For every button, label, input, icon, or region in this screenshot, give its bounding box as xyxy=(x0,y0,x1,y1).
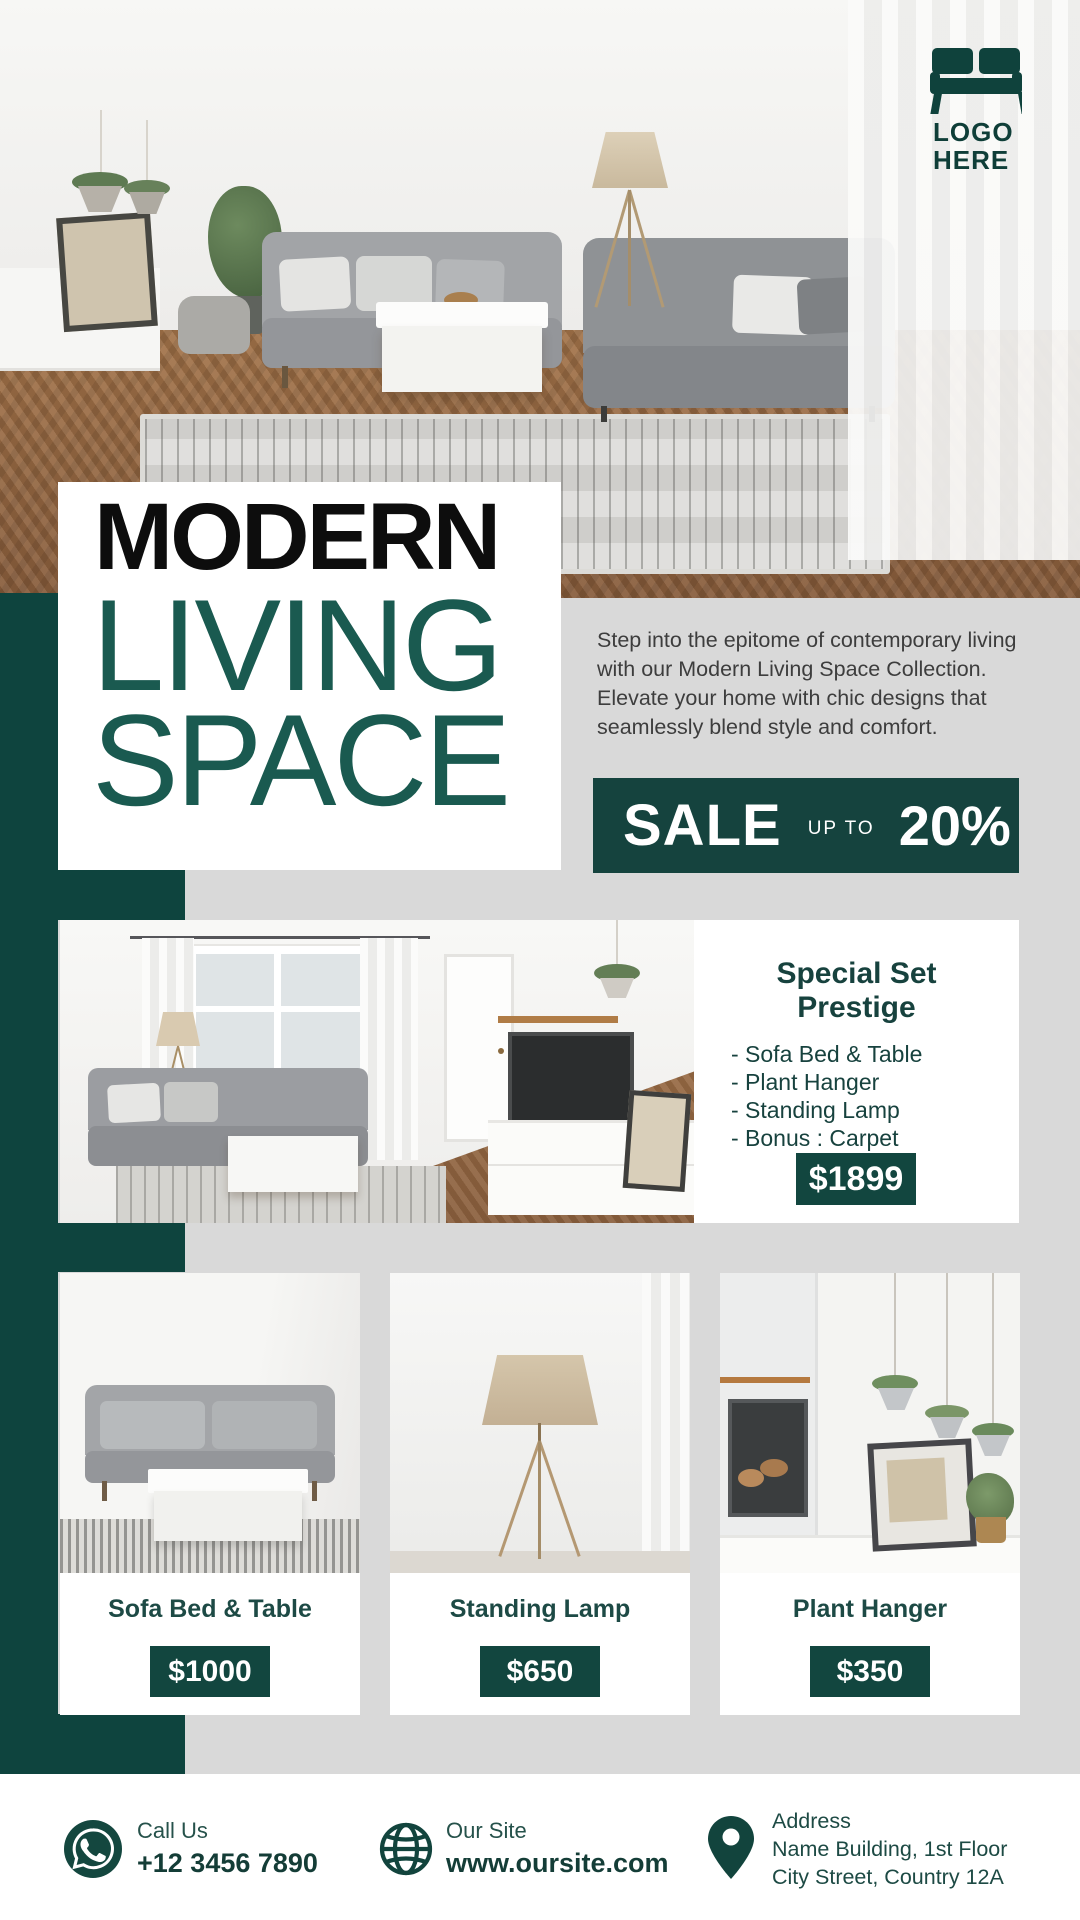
window-mullion-h xyxy=(196,1006,360,1012)
sale-word: SALE xyxy=(623,792,782,859)
special-set-item: - Plant Hanger xyxy=(731,1068,879,1096)
sale-banner: SALE UP TO 20% xyxy=(593,778,1019,873)
special-set-photo xyxy=(60,920,694,1223)
globe-icon xyxy=(377,1820,435,1878)
leaning-frame-2 xyxy=(623,1090,692,1192)
special-set-price-button[interactable]: $1899 xyxy=(796,1153,916,1205)
band-step-1 xyxy=(0,870,185,920)
title-line-1: MODERN xyxy=(94,490,498,585)
p2-lamp-leg3 xyxy=(538,1441,541,1559)
logo-line2: HERE xyxy=(933,146,1014,174)
product-photo-sofa xyxy=(60,1273,360,1573)
product-card-sofa: Sofa Bed & Table $1000 xyxy=(60,1273,360,1715)
product-photo-plant xyxy=(720,1273,1020,1573)
p1-table-body xyxy=(154,1491,302,1541)
footer: Call Us +12 3456 7890 Our Site www.oursi… xyxy=(0,1774,1080,1920)
tv xyxy=(508,1032,634,1124)
product-name: Sofa Bed & Table xyxy=(60,1595,360,1624)
p1-sofa-leg2 xyxy=(312,1481,317,1501)
product-name: Plant Hanger xyxy=(720,1595,1020,1624)
special-set-title-2: Prestige xyxy=(694,991,1019,1025)
special-set-panel: Special Set Prestige - Sofa Bed & Table … xyxy=(694,920,1019,1223)
site-value[interactable]: www.oursite.com xyxy=(446,1848,669,1879)
door xyxy=(444,954,514,1142)
product-price-button[interactable]: $650 xyxy=(480,1646,600,1697)
address-line2: City Street, Country 12A xyxy=(772,1863,1007,1891)
product-price-button[interactable]: $350 xyxy=(810,1646,930,1697)
p1-sofa-cushion xyxy=(100,1401,205,1449)
title-line-3: SPACE xyxy=(92,695,508,825)
hanging-planter2-string xyxy=(146,120,148,186)
sofa-right-leg xyxy=(601,406,607,422)
p3-hanger3-string xyxy=(992,1273,994,1433)
p3-hanger-string xyxy=(894,1273,896,1385)
sofa-left-pillow xyxy=(279,256,352,312)
logo-line1: LOGO xyxy=(933,118,1014,146)
p1-table-top xyxy=(148,1469,308,1493)
p3-fireplace-opening xyxy=(728,1399,808,1517)
p3-small-plant-pot xyxy=(976,1517,1006,1543)
p1-sofa-cushion2 xyxy=(212,1401,317,1449)
curtain-right-panel xyxy=(360,938,418,1160)
p1-sofa-leg xyxy=(102,1481,107,1501)
product-photo-lamp xyxy=(390,1273,690,1573)
p2-curtain xyxy=(642,1273,690,1573)
intro-paragraph: Step into the epitome of contemporary li… xyxy=(597,626,1021,742)
call-value[interactable]: +12 3456 7890 xyxy=(137,1848,318,1879)
special-set-card: Special Set Prestige - Sofa Bed & Table … xyxy=(60,920,1019,1223)
tv-shelf xyxy=(498,1016,618,1023)
logo xyxy=(930,48,1026,114)
sale-percent: 20% xyxy=(899,793,1011,858)
room-table xyxy=(228,1136,358,1192)
room-sofa-pillow2 xyxy=(164,1082,218,1122)
p3-log xyxy=(738,1469,764,1487)
pouf xyxy=(178,296,250,354)
site-label: Our Site xyxy=(446,1818,527,1844)
product-card-lamp: Standing Lamp $650 xyxy=(390,1273,690,1715)
leaning-frame xyxy=(56,212,158,332)
product-name: Standing Lamp xyxy=(390,1595,690,1624)
p3-hanger2-string xyxy=(946,1273,948,1415)
special-set-item: - Bonus : Carpet xyxy=(731,1124,898,1152)
call-label: Call Us xyxy=(137,1818,208,1844)
whatsapp-icon xyxy=(64,1820,122,1878)
coffee-table-top xyxy=(376,302,548,328)
room-lamp-shade xyxy=(156,1012,200,1046)
p3-mantel-trim xyxy=(720,1377,810,1383)
sofa-icon xyxy=(930,48,1022,114)
band-step-3 xyxy=(0,1714,185,1774)
flyer-page: LOGO HERE MODERN LIVING SPACE Step into … xyxy=(0,0,1080,1920)
logo-text: LOGO HERE xyxy=(933,118,1014,174)
p3-frame-inner xyxy=(886,1458,947,1523)
sale-upto: UP TO xyxy=(808,818,875,840)
door-handle xyxy=(498,1048,504,1054)
sofa-left-leg xyxy=(282,366,288,388)
p2-lamp-shade xyxy=(482,1355,598,1425)
title-box: MODERN LIVING SPACE xyxy=(58,482,561,870)
band-step-2 xyxy=(0,1223,185,1272)
address-line1: Name Building, 1st Floor xyxy=(772,1835,1007,1863)
special-set-item: - Standing Lamp xyxy=(731,1096,900,1124)
window-mullion-v xyxy=(274,950,281,1074)
address-block: Address Name Building, 1st Floor City St… xyxy=(772,1807,1007,1891)
coffee-table-body xyxy=(382,326,542,392)
special-set-item: - Sofa Bed & Table xyxy=(731,1040,922,1068)
special-set-title-1: Special Set xyxy=(694,957,1019,991)
product-price-button[interactable]: $1000 xyxy=(150,1646,270,1697)
address-label: Address xyxy=(772,1807,1007,1835)
location-pin-icon xyxy=(708,1816,754,1880)
room-sofa-pillow xyxy=(107,1083,161,1124)
p3-log2 xyxy=(760,1459,788,1477)
side-band xyxy=(0,593,58,1774)
floor-lamp-leg3 xyxy=(628,190,631,306)
product-card-plant: Plant Hanger $350 xyxy=(720,1273,1020,1715)
